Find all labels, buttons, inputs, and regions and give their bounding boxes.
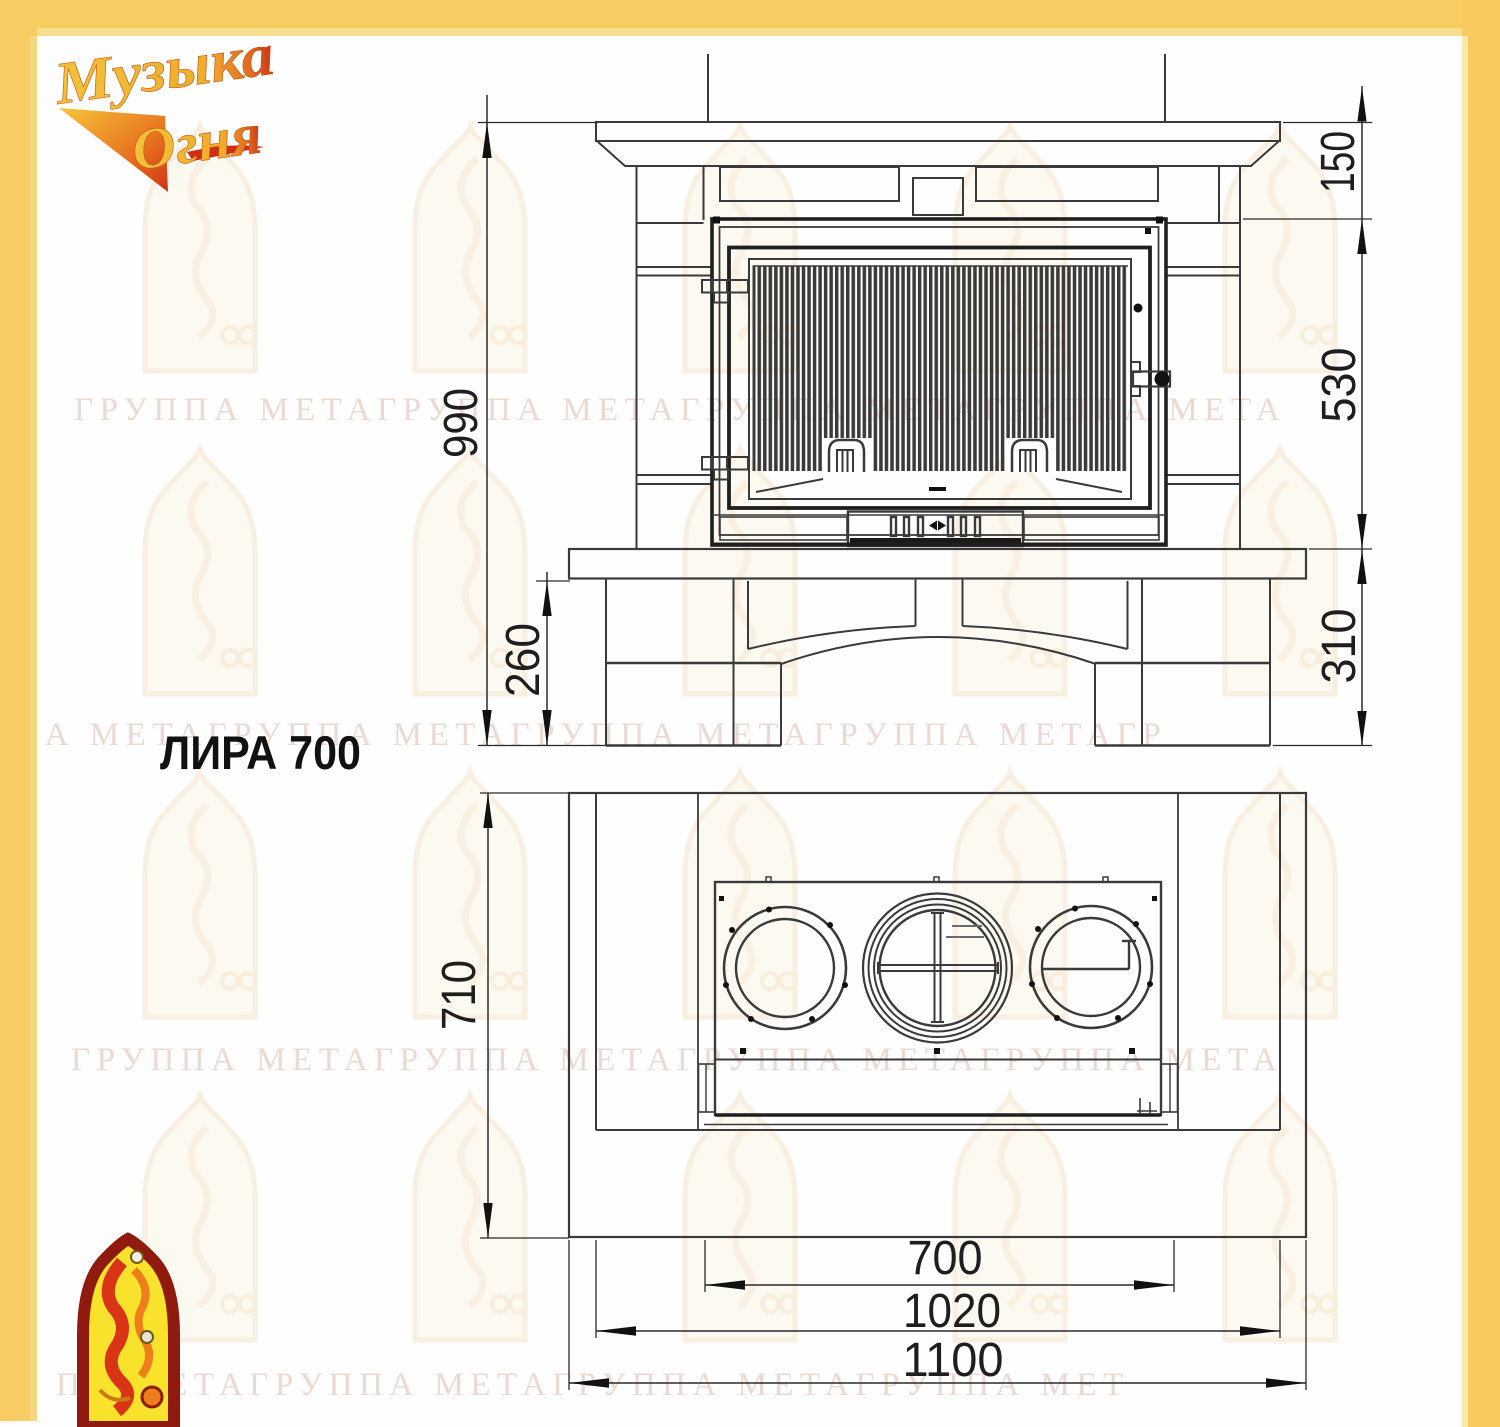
svg-text:310: 310 (1313, 609, 1366, 684)
svg-text:990: 990 (435, 388, 488, 458)
svg-text:ЛИРА 700: ЛИРА 700 (160, 726, 361, 779)
svg-text:150: 150 (1312, 131, 1365, 193)
svg-text:710: 710 (433, 960, 486, 1030)
svg-text:1100: 1100 (903, 1334, 1004, 1387)
svg-text:1020: 1020 (903, 1285, 1001, 1338)
svg-text:700: 700 (908, 1232, 983, 1285)
svg-text:530: 530 (1313, 348, 1366, 423)
svg-text:260: 260 (497, 623, 550, 697)
